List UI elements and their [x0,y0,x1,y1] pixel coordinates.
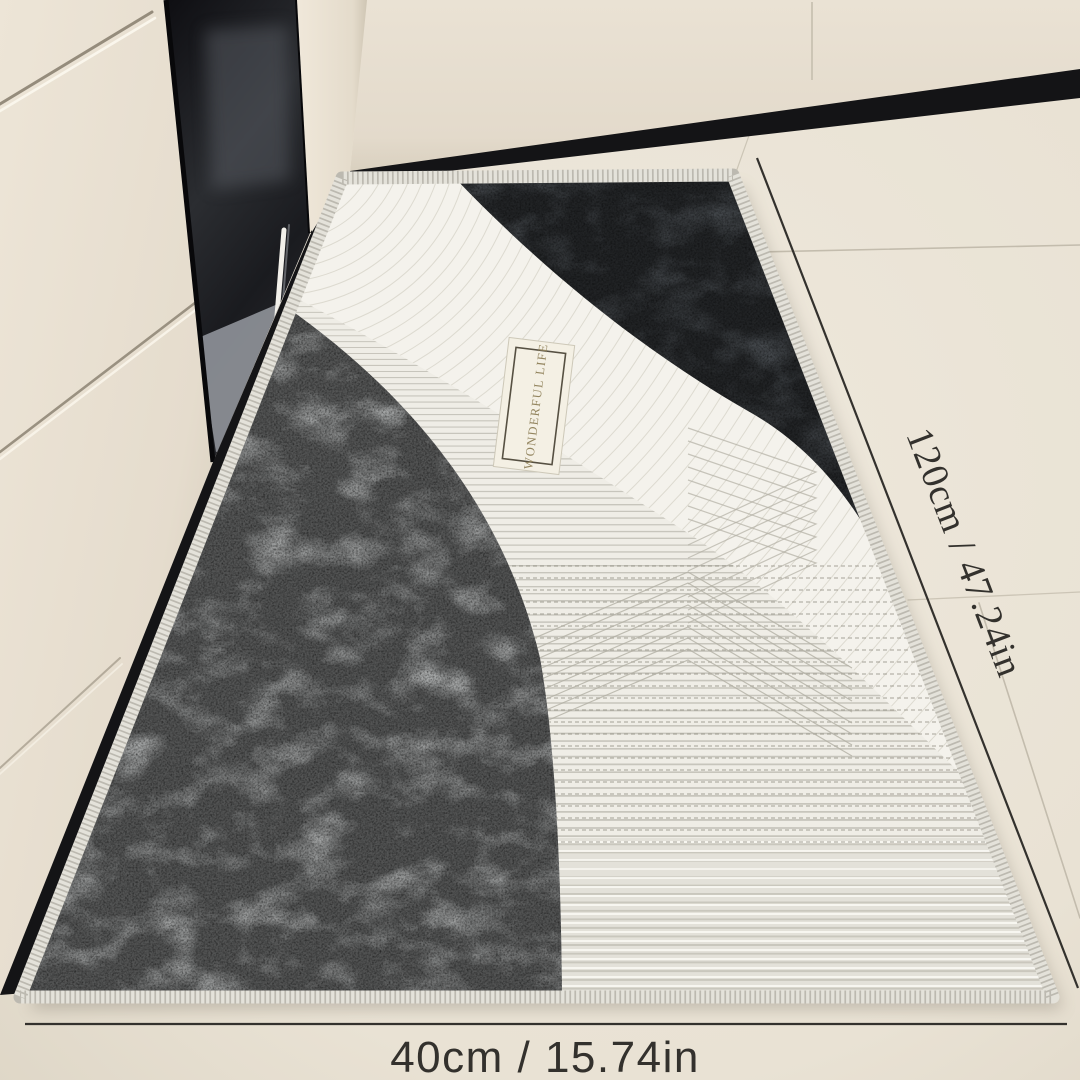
width-dimension-label: 40cm / 15.74in [390,1033,700,1080]
cabinet-reflection [205,25,290,190]
product-photo-kitchen-mat: WONDERFUL LIFE 120cm / 47.24in 40cm / 15… [0,0,1080,1080]
scene-canvas: WONDERFUL LIFE 120cm / 47.24in 40cm / 15… [0,0,1080,1080]
